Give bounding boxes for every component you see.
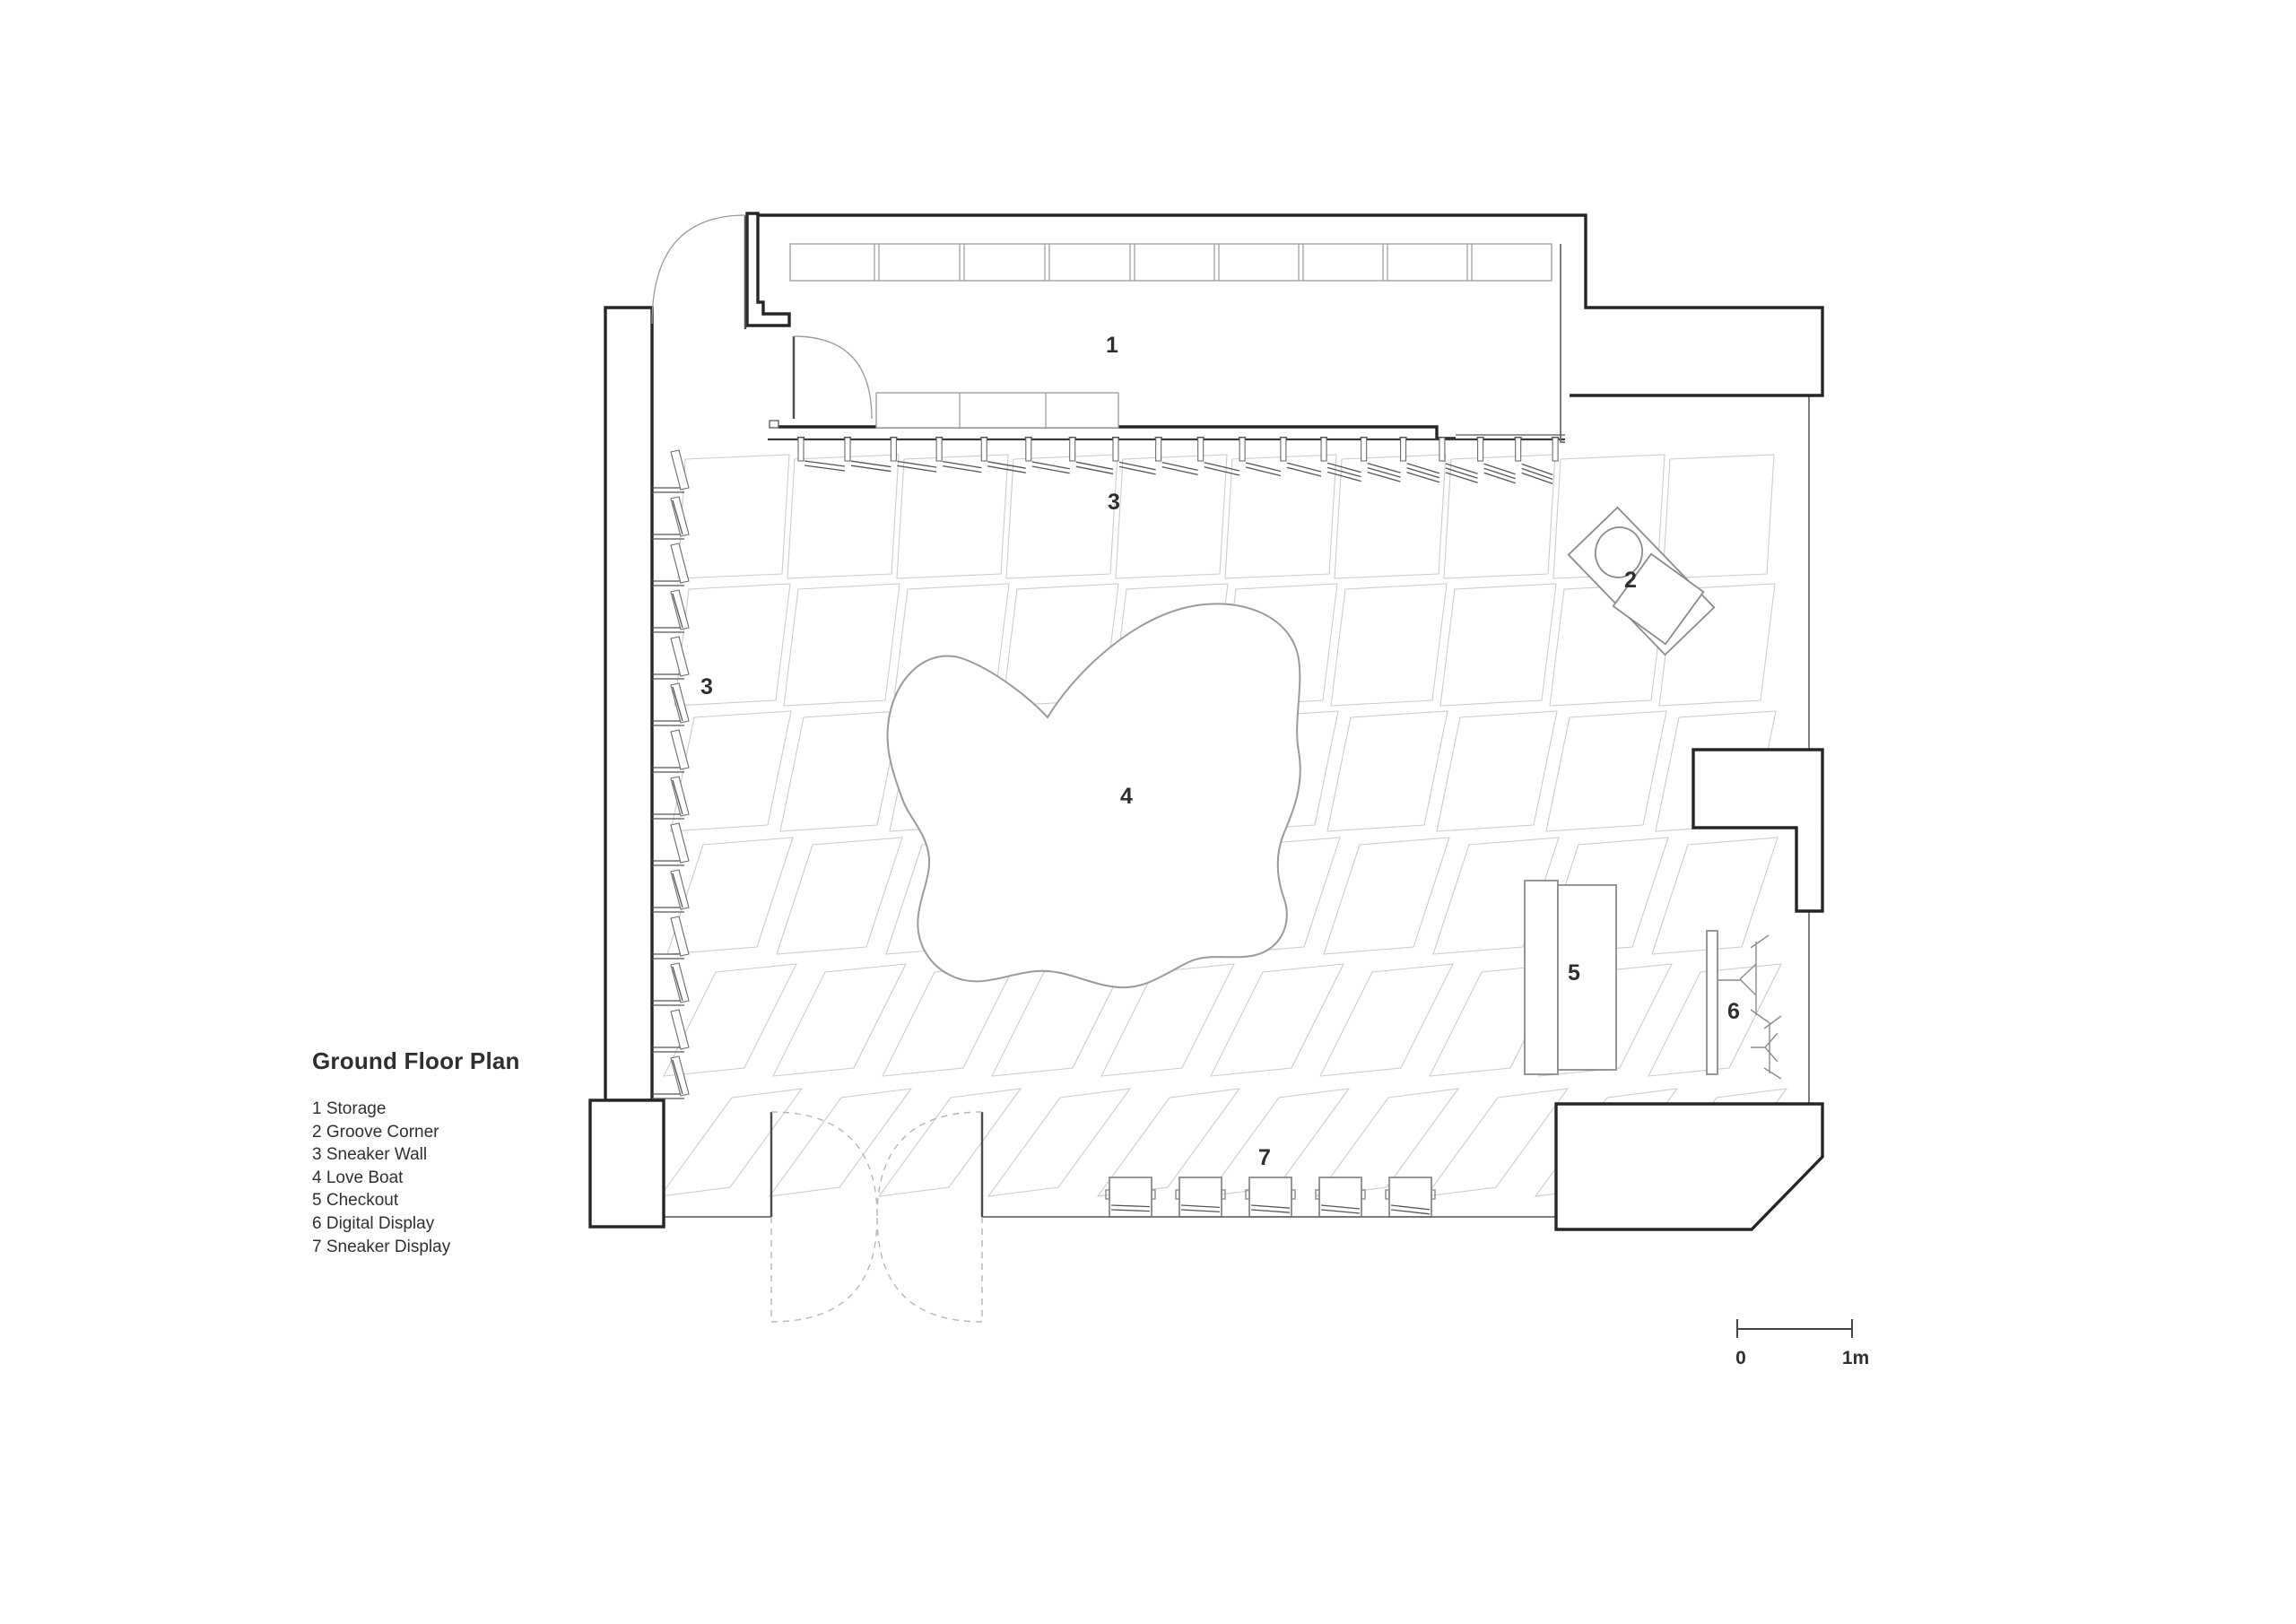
floor-tile xyxy=(1546,711,1666,831)
legend-item-checkout: 5 Checkout xyxy=(312,1189,450,1212)
door-swing-arc xyxy=(794,336,872,419)
floor-tile xyxy=(1440,584,1556,706)
floor-tile xyxy=(1426,1089,1568,1196)
floor-tile xyxy=(879,1089,1021,1196)
storage-shelving xyxy=(790,244,1552,428)
fin-bracket xyxy=(981,438,987,461)
fin-bracket xyxy=(1439,438,1445,461)
left-wall-pier xyxy=(590,1100,664,1227)
fin-shelf xyxy=(652,721,684,725)
label-groove-corner: 2 xyxy=(1624,568,1637,593)
fin-bracket xyxy=(1321,438,1326,461)
fin-shelf xyxy=(1205,463,1239,475)
fin-shelf xyxy=(652,908,684,912)
fin-shelf xyxy=(652,628,684,632)
sneaker-box xyxy=(1389,1177,1431,1217)
fin-blade xyxy=(671,543,689,583)
fin-bracket xyxy=(1198,438,1204,461)
legend-item-sneaker-display: 7 Sneaker Display xyxy=(312,1236,450,1259)
fin-bracket xyxy=(1070,438,1075,461)
fin-bracket xyxy=(1239,438,1245,461)
fin-bracket xyxy=(1113,438,1118,461)
fin-blade xyxy=(671,730,689,769)
legend: 1 Storage 2 Groove Corner 3 Sneaker Wall… xyxy=(312,1098,450,1258)
entry-jamb xyxy=(747,213,789,326)
label-checkout: 5 xyxy=(1568,960,1580,986)
floor-tile xyxy=(674,584,790,706)
fin-bracket xyxy=(1361,438,1367,461)
storage-right-wall xyxy=(1561,244,1565,442)
fin-shelf xyxy=(652,674,684,679)
fin-bracket xyxy=(1401,438,1406,461)
fin-shelf xyxy=(652,861,684,865)
floor-plan-canvas: 1 2 3 3 4 5 6 7 0 1m xyxy=(0,0,2296,1624)
floor-plan-page: 1 2 3 3 4 5 6 7 0 1m Ground Floor Plan 1… xyxy=(0,0,2296,1624)
fin-shelf xyxy=(652,1001,684,1005)
legend-item-storage: 1 Storage xyxy=(312,1098,450,1121)
floor-tile xyxy=(1437,711,1557,831)
floor-tile xyxy=(770,1089,911,1196)
fin-shelf xyxy=(1076,462,1113,473)
entry-door-swing-arcs xyxy=(771,1112,982,1322)
entry-double-doors xyxy=(771,1112,982,1322)
scale-end-label: 1m xyxy=(1842,1348,1869,1368)
left-wall xyxy=(605,308,652,1100)
floor-tile xyxy=(1327,711,1448,831)
fin-shelf xyxy=(1522,464,1552,483)
floor-tile xyxy=(883,964,1015,1076)
sneaker-box-tab xyxy=(1176,1190,1179,1199)
fin-shelf xyxy=(1032,462,1070,473)
label-digital-display: 6 xyxy=(1727,999,1740,1024)
fin-blade xyxy=(671,450,689,490)
fin-bracket xyxy=(1156,438,1161,461)
floor-tile xyxy=(1211,964,1344,1076)
fin-shelf xyxy=(1484,464,1516,483)
floor-tile xyxy=(773,964,906,1076)
fin-shelf xyxy=(804,461,845,471)
right-pier xyxy=(1693,750,1822,911)
sneaker-display-boxes xyxy=(1106,1177,1435,1217)
fin-bracket xyxy=(1516,438,1521,461)
fin-shelf xyxy=(943,462,981,473)
digital-display xyxy=(1707,931,1781,1079)
floor-tile xyxy=(1331,584,1447,706)
scale-start-label: 0 xyxy=(1735,1348,1746,1368)
groove-corner xyxy=(1569,508,1714,655)
fin-shelf xyxy=(1287,463,1321,476)
fin-bracket xyxy=(1026,438,1031,461)
fin-shelf xyxy=(652,534,684,539)
fin-shelf xyxy=(652,768,684,772)
fin-shelf xyxy=(652,488,684,492)
fin-shelf xyxy=(851,461,891,471)
floor-tile xyxy=(1324,838,1449,954)
legend-item-groove-corner: 2 Groove Corner xyxy=(312,1121,450,1144)
scale-bar: 0 1m xyxy=(1735,1319,1869,1368)
fin-shelf xyxy=(652,954,684,959)
fin-shelf xyxy=(652,1047,684,1052)
love-boat-shape xyxy=(887,604,1300,987)
floor-tile xyxy=(1006,455,1118,578)
fin-shelf xyxy=(1246,463,1281,476)
fin-shelf xyxy=(1327,463,1361,481)
label-love-boat: 4 xyxy=(1120,784,1133,809)
wall-step xyxy=(770,421,778,428)
fin-bracket xyxy=(1281,438,1286,461)
label-sneaker-display: 7 xyxy=(1258,1145,1271,1170)
fin-bracket xyxy=(1478,438,1483,461)
floor-tile xyxy=(1225,455,1336,578)
floor-tile xyxy=(777,838,902,954)
fin-blade xyxy=(671,1010,689,1049)
fin-bracket xyxy=(798,438,804,461)
sneaker-box-tab xyxy=(1152,1190,1155,1199)
page-title: Ground Floor Plan xyxy=(312,1047,520,1075)
legend-item-digital-display: 6 Digital Display xyxy=(312,1212,450,1236)
fin-blade xyxy=(671,637,689,676)
door-swing-arc xyxy=(652,215,745,324)
floor-tile xyxy=(660,1089,802,1196)
fin-shelf xyxy=(1162,463,1198,475)
floor-tile xyxy=(784,584,900,706)
sneaker-box-tab xyxy=(1386,1190,1389,1199)
floor-tile xyxy=(1320,964,1453,1076)
fin-shelf xyxy=(652,1094,684,1099)
sneaker-box-tab xyxy=(1431,1190,1435,1199)
sneaker-box-tab xyxy=(1361,1190,1365,1199)
floor-tile xyxy=(787,455,899,578)
fin-bracket xyxy=(891,438,896,461)
fin-bracket xyxy=(936,438,942,461)
floor-tile xyxy=(897,455,1008,578)
fin-bracket xyxy=(1552,438,1558,461)
label-sneaker-wall-top: 3 xyxy=(1108,490,1120,515)
sneaker-box-tab xyxy=(1106,1190,1109,1199)
sneaker-box-tab xyxy=(1291,1190,1295,1199)
fin-blade xyxy=(671,823,689,863)
title-block: Ground Floor Plan xyxy=(312,1047,520,1075)
legend-item-love-boat: 4 Love Boat xyxy=(312,1167,450,1190)
floor-tile xyxy=(780,711,900,831)
label-storage: 1 xyxy=(1106,333,1118,358)
floor-tile xyxy=(678,455,789,578)
sneaker-wall-left-fins xyxy=(652,450,689,1099)
fin-shelf xyxy=(652,581,684,586)
floor-tile xyxy=(1335,455,1446,578)
legend-item-sneaker-wall: 3 Sneaker Wall xyxy=(312,1143,450,1167)
fin-bracket xyxy=(845,438,850,461)
label-sneaker-wall-left: 3 xyxy=(700,674,713,699)
fin-shelf xyxy=(652,814,684,819)
fin-shelf xyxy=(1119,462,1156,473)
fin-shelf xyxy=(1368,464,1401,482)
chamfer-pier xyxy=(1556,1104,1822,1229)
floor-tile xyxy=(1663,455,1774,578)
floor-tile xyxy=(1116,455,1227,578)
top-wall xyxy=(758,215,1822,395)
fin-shelf xyxy=(1407,464,1439,482)
